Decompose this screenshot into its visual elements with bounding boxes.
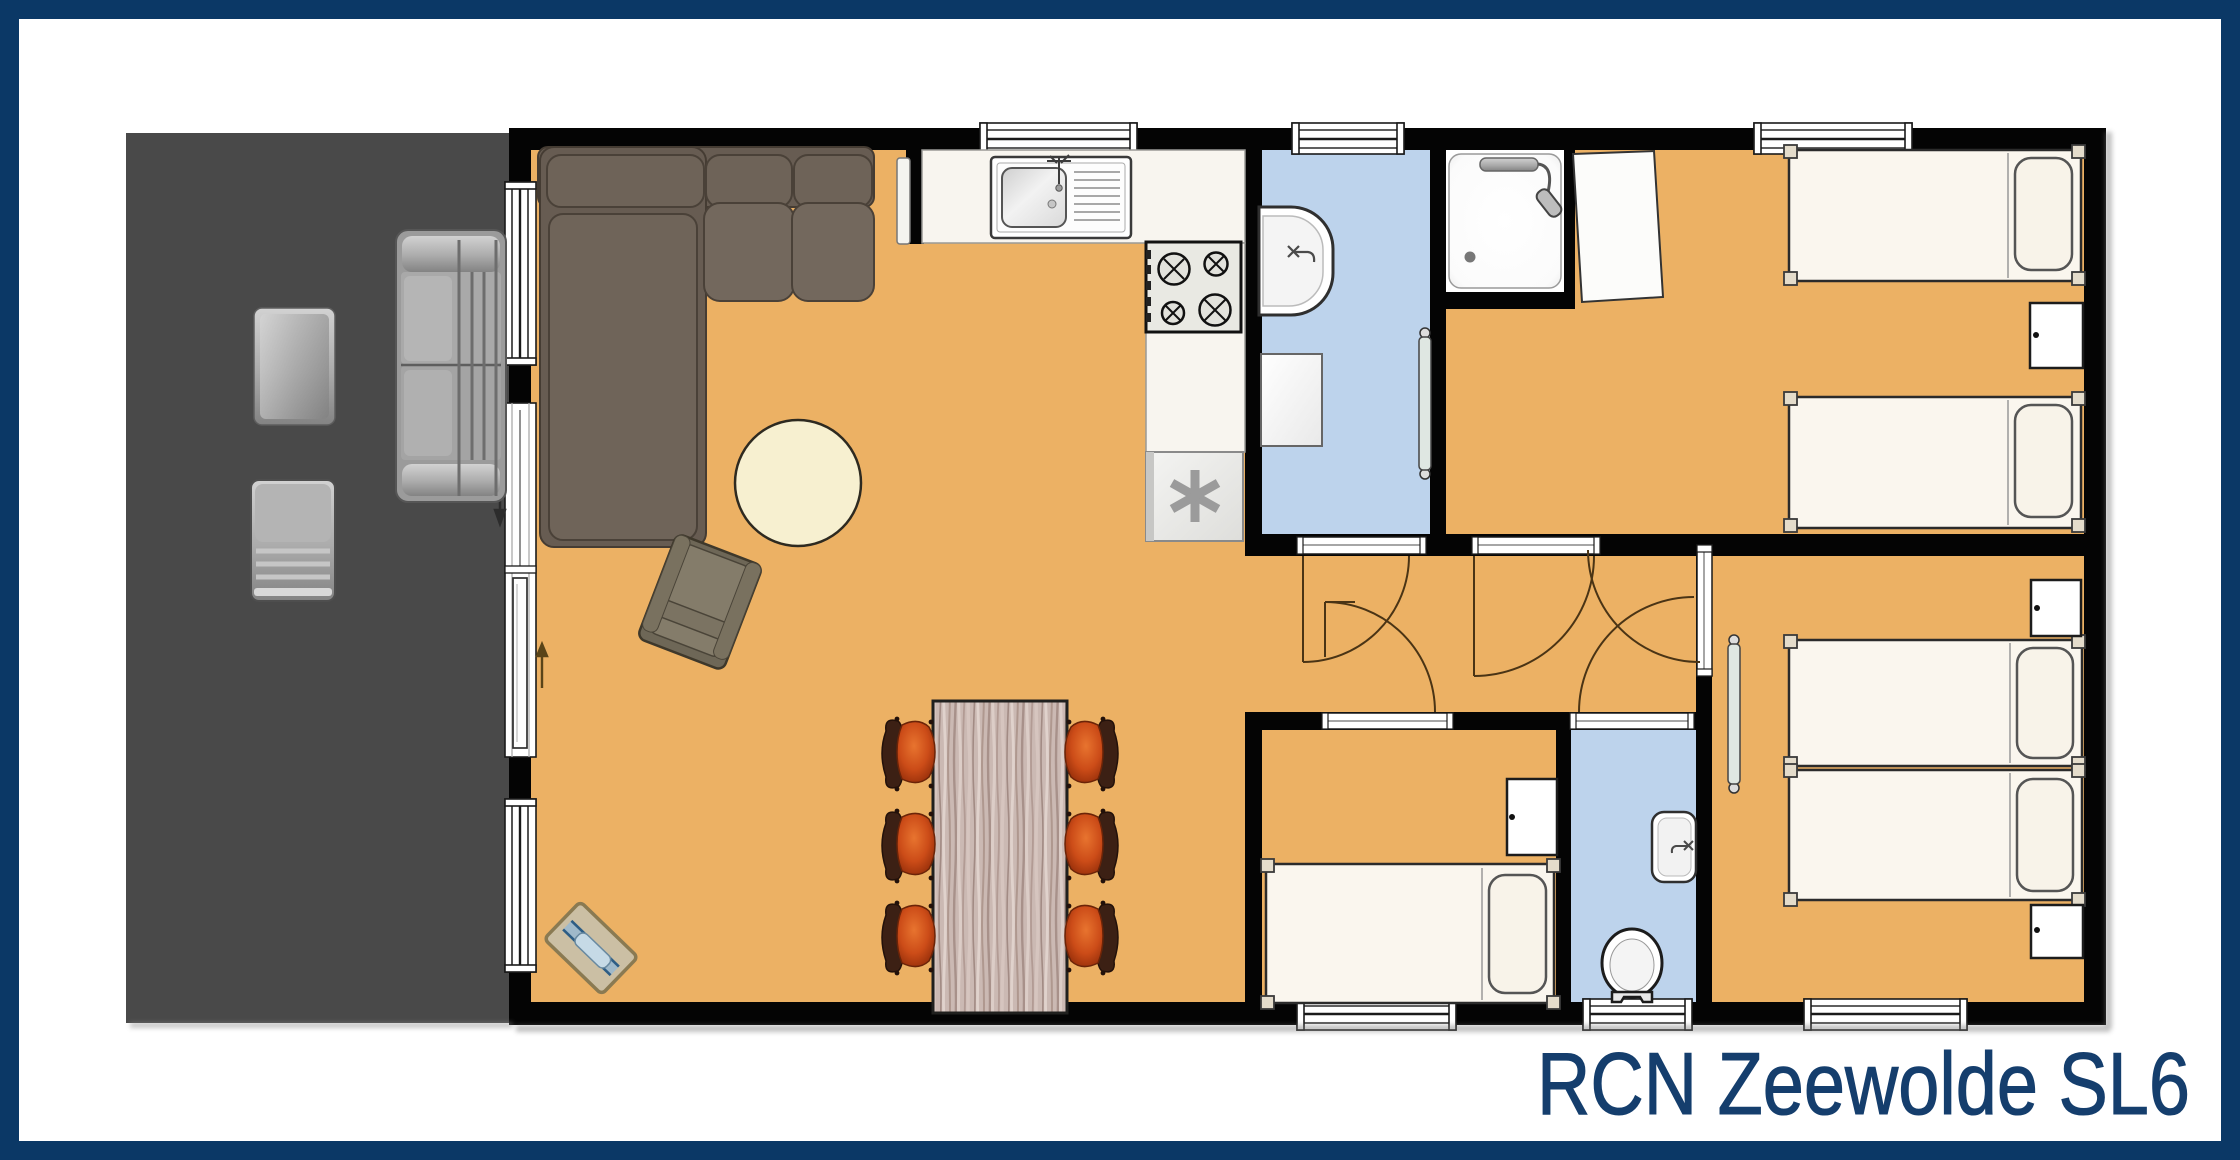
svg-text:RCN Zeewolde SL6: RCN Zeewolde SL6 bbox=[1537, 1034, 2190, 1133]
